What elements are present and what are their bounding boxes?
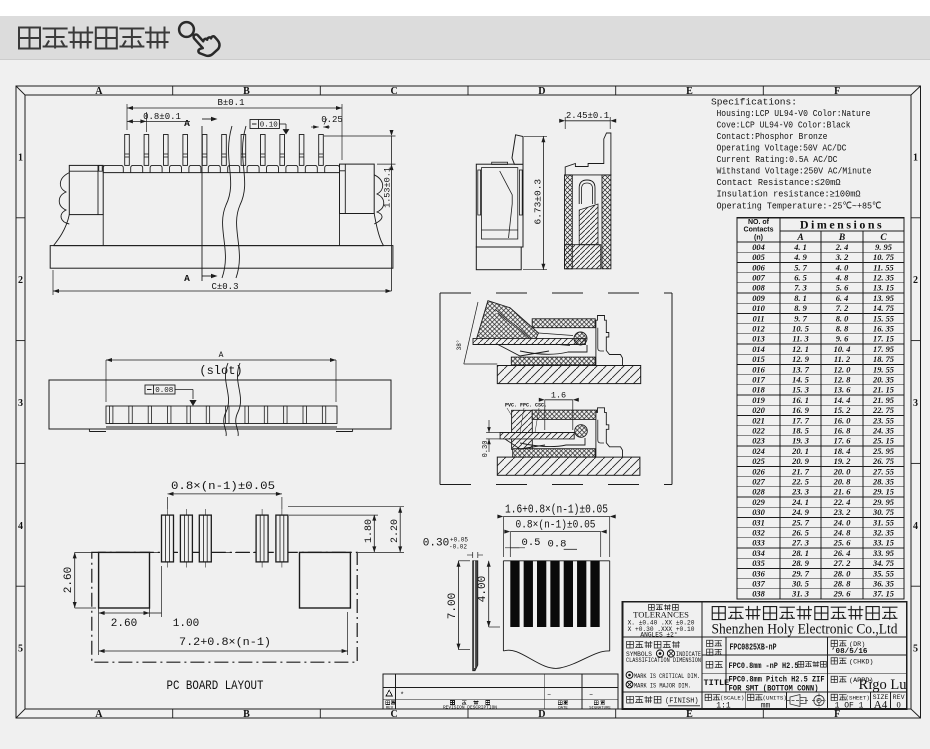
svg-text:C: C — [391, 709, 398, 720]
svg-text:007: 007 — [752, 274, 765, 283]
svg-text:MARK IS MAJOR DIM.: MARK IS MAJOR DIM. — [634, 683, 691, 690]
svg-text:36. 35: 36. 35 — [872, 580, 894, 589]
svg-text:004: 004 — [752, 243, 765, 252]
svg-text:029: 029 — [752, 498, 765, 507]
svg-text:21. 6: 21. 6 — [833, 488, 852, 497]
svg-text:013: 013 — [752, 335, 765, 344]
svg-text:18. 4: 18. 4 — [834, 447, 851, 456]
svg-text:024: 024 — [752, 447, 765, 456]
svg-text:TOLERANCES: TOLERANCES — [633, 610, 689, 620]
svg-text:005: 005 — [752, 253, 765, 262]
svg-text:PVC.: PVC. — [505, 403, 517, 409]
svg-text:021: 021 — [752, 416, 765, 425]
svg-text:3. 2: 3. 2 — [835, 253, 849, 262]
svg-text:9. 95: 9. 95 — [875, 243, 892, 252]
svg-text:–: – — [547, 691, 551, 699]
svg-text:1: 1 — [913, 152, 918, 163]
svg-text:24. 1: 24. 1 — [791, 498, 809, 507]
svg-text:17. 15: 17. 15 — [873, 335, 894, 344]
svg-text:29. 7: 29. 7 — [791, 569, 810, 578]
svg-text:16. 9: 16. 9 — [792, 406, 810, 415]
svg-text:4. 1: 4. 1 — [793, 243, 807, 252]
svg-text:0.10: 0.10 — [260, 122, 279, 130]
svg-text:035: 035 — [752, 559, 765, 568]
svg-text:0.8×(n-1)±0.05: 0.8×(n-1)±0.05 — [516, 520, 596, 532]
svg-text:23. 3: 23. 3 — [791, 488, 809, 497]
svg-text:31. 55: 31. 55 — [872, 518, 894, 527]
svg-text:26. 5: 26. 5 — [791, 529, 809, 538]
svg-text:4. 8: 4. 8 — [835, 274, 849, 283]
svg-text:13. 15: 13. 15 — [873, 284, 894, 293]
svg-text:10. 75: 10. 75 — [873, 253, 894, 262]
svg-text:1.6+0.8×(n-1)±0.05: 1.6+0.8×(n-1)±0.05 — [505, 504, 608, 517]
svg-text:19. 2: 19. 2 — [834, 457, 851, 466]
svg-text:4. 0: 4. 0 — [835, 263, 849, 272]
svg-text:14. 5: 14. 5 — [792, 376, 809, 385]
svg-text:–: – — [589, 691, 593, 699]
svg-text:15. 2: 15. 2 — [834, 406, 851, 415]
svg-text:0.08: 0.08 — [155, 387, 173, 395]
svg-text:28. 8: 28. 8 — [833, 580, 852, 589]
svg-text:A4: A4 — [874, 699, 888, 711]
svg-text:010: 010 — [752, 304, 765, 313]
svg-text:1.53±0.1: 1.53±0.1 — [383, 167, 393, 208]
svg-text:24. 35: 24. 35 — [872, 427, 894, 436]
svg-text:4: 4 — [913, 521, 918, 532]
svg-text:D: D — [538, 709, 545, 720]
svg-text:ANGLES ±2°: ANGLES ±2° — [640, 631, 677, 638]
svg-text:FOR SMT (BOTTOM CONN): FOR SMT (BOTTOM CONN) — [729, 683, 819, 693]
svg-text:5: 5 — [913, 644, 918, 655]
svg-text:2.45±0.1: 2.45±0.1 — [566, 111, 609, 121]
svg-text:1.00: 1.00 — [173, 618, 199, 630]
svg-text:18. 5: 18. 5 — [792, 427, 809, 436]
svg-text:27. 2: 27. 2 — [833, 559, 851, 568]
svg-text:REVISION DESCRIPTION: REVISION DESCRIPTION — [443, 705, 497, 711]
svg-text:1: 1 — [18, 152, 23, 163]
svg-text:12. 1: 12. 1 — [792, 345, 809, 354]
svg-text:A: A — [796, 233, 803, 243]
svg-text:2.20: 2.20 — [390, 519, 401, 543]
svg-text:Specifications:: Specifications: — [711, 96, 797, 107]
svg-text:*: * — [400, 692, 404, 700]
svg-text:A: A — [184, 273, 190, 284]
svg-text:Dimensions: Dimensions — [800, 217, 884, 231]
svg-text:C: C — [880, 233, 887, 243]
svg-text:25. 7: 25. 7 — [791, 518, 810, 527]
svg-text:19. 3: 19. 3 — [792, 437, 809, 446]
svg-text:037: 037 — [752, 580, 765, 589]
svg-text:B±0.1: B±0.1 — [217, 98, 244, 108]
svg-text:20. 9: 20. 9 — [791, 457, 810, 466]
svg-text:C±0.3: C±0.3 — [211, 282, 238, 292]
svg-text:12. 8: 12. 8 — [834, 376, 852, 385]
svg-text:E: E — [686, 86, 693, 97]
svg-text:Contacts: Contacts — [744, 227, 774, 234]
svg-text:15. 55: 15. 55 — [873, 314, 894, 323]
svg-text:4: 4 — [18, 521, 23, 532]
svg-text:17. 95: 17. 95 — [873, 345, 894, 354]
svg-text:1.80: 1.80 — [364, 519, 375, 543]
svg-text:Contact Resistance:≤20mΩ: Contact Resistance:≤20mΩ — [717, 177, 841, 188]
svg-text:7. 3: 7. 3 — [794, 284, 807, 293]
svg-text:1.6: 1.6 — [551, 391, 566, 401]
svg-text:Insulation resistance:≥100mΩ: Insulation resistance:≥100mΩ — [717, 189, 861, 200]
svg-text:014: 014 — [752, 345, 765, 354]
svg-text:17. 6: 17. 6 — [834, 437, 852, 446]
svg-text:12. 9: 12. 9 — [792, 355, 810, 364]
svg-text:8. 8: 8. 8 — [836, 325, 849, 334]
svg-text:NO. of: NO. of — [748, 219, 770, 226]
svg-text:(CHKD): (CHKD) — [849, 659, 873, 667]
svg-text:036: 036 — [752, 569, 765, 578]
svg-text:19. 55: 19. 55 — [873, 365, 894, 374]
svg-text:15. 3: 15. 3 — [792, 386, 809, 395]
svg-text:017: 017 — [752, 376, 765, 385]
svg-text:027: 027 — [752, 478, 765, 487]
svg-text:026: 026 — [752, 467, 765, 476]
svg-text:9. 6: 9. 6 — [836, 335, 849, 344]
svg-text:23. 55: 23. 55 — [872, 416, 894, 425]
svg-text:015: 015 — [752, 355, 765, 364]
svg-text:0.8×(n-1)±0.05: 0.8×(n-1)±0.05 — [171, 481, 275, 493]
svg-text:0.5: 0.5 — [522, 537, 541, 549]
svg-text:023: 023 — [752, 437, 765, 446]
svg-text:16. 8: 16. 8 — [834, 427, 852, 436]
svg-text:21. 95: 21. 95 — [872, 396, 894, 405]
svg-text:38°: 38° — [456, 340, 463, 351]
svg-text:0.30: 0.30 — [423, 538, 449, 550]
svg-text:10. 5: 10. 5 — [792, 325, 809, 334]
svg-text:16. 35: 16. 35 — [873, 325, 894, 334]
svg-text:028: 028 — [752, 488, 765, 497]
svg-text:28. 0: 28. 0 — [833, 569, 852, 578]
svg-text:21. 7: 21. 7 — [791, 467, 810, 476]
svg-text:FPC0825XB-nP: FPC0825XB-nP — [730, 643, 777, 653]
svg-text:12. 0: 12. 0 — [834, 365, 852, 374]
svg-text:’08/5/16: ’08/5/16 — [831, 648, 868, 656]
svg-text:6. 5: 6. 5 — [794, 274, 807, 283]
svg-text:29. 15: 29. 15 — [872, 488, 894, 497]
svg-text:26. 4: 26. 4 — [833, 549, 851, 558]
svg-text:+0.05: +0.05 — [450, 537, 468, 544]
svg-text:23. 2: 23. 2 — [833, 508, 851, 517]
svg-text:0.8±0.1: 0.8±0.1 — [143, 112, 181, 122]
svg-text:CSC.: CSC. — [535, 403, 547, 409]
svg-text:A: A — [95, 86, 103, 97]
svg-text:006: 006 — [752, 263, 765, 272]
svg-text:008: 008 — [752, 284, 765, 293]
svg-text:REV: REV — [386, 707, 394, 711]
svg-text:22. 4: 22. 4 — [833, 498, 851, 507]
svg-text:034: 034 — [752, 549, 765, 558]
svg-text:011: 011 — [752, 314, 764, 323]
svg-text:6.73±0.3: 6.73±0.3 — [532, 179, 543, 225]
svg-text:020: 020 — [752, 406, 765, 415]
svg-text:D: D — [538, 86, 545, 97]
svg-text:13. 95: 13. 95 — [873, 294, 894, 303]
svg-text:038: 038 — [752, 590, 765, 599]
svg-text:SIGNATURE: SIGNATURE — [589, 707, 611, 711]
svg-text:12. 35: 12. 35 — [873, 274, 894, 283]
svg-text:(n): (n) — [754, 235, 763, 242]
svg-text:13. 7: 13. 7 — [792, 365, 810, 374]
svg-text:0.30: 0.30 — [482, 441, 490, 458]
svg-text:012: 012 — [752, 325, 765, 334]
svg-text:27. 3: 27. 3 — [791, 539, 809, 548]
svg-text:1:1: 1:1 — [716, 701, 731, 710]
svg-text:13. 6: 13. 6 — [834, 386, 852, 395]
svg-text:16. 1: 16. 1 — [792, 396, 809, 405]
svg-text:2: 2 — [913, 275, 918, 286]
svg-text:TITLE: TITLE — [704, 678, 730, 688]
svg-text:4. 9: 4. 9 — [793, 253, 807, 262]
svg-text:019: 019 — [752, 396, 765, 405]
svg-text:2.60: 2.60 — [63, 567, 75, 593]
svg-text:A: A — [95, 709, 103, 720]
svg-text:20. 1: 20. 1 — [791, 447, 809, 456]
svg-text:FPC.: FPC. — [520, 403, 532, 409]
svg-text:17. 7: 17. 7 — [792, 416, 810, 425]
svg-text:5: 5 — [18, 644, 23, 655]
svg-text:022: 022 — [752, 427, 765, 436]
svg-text:3: 3 — [18, 398, 23, 409]
svg-text:6. 4: 6. 4 — [836, 294, 849, 303]
svg-text:FPC0.8mm Pitch H2.5 ZIF: FPC0.8mm Pitch H2.5 ZIF — [729, 674, 825, 684]
svg-text:PC BOARD LAYOUT: PC BOARD LAYOUT — [167, 679, 264, 693]
svg-text:28. 9: 28. 9 — [791, 559, 810, 568]
svg-text:FPC0.8mm -nP H2.5: FPC0.8mm -nP H2.5 — [729, 661, 799, 671]
svg-text:28. 1: 28. 1 — [791, 549, 809, 558]
svg-text:22. 5: 22. 5 — [791, 478, 809, 487]
svg-text:E: E — [686, 709, 693, 720]
svg-text:14. 75: 14. 75 — [873, 304, 894, 313]
svg-text:Housing:LCP UL94-V0 Color:Natu: Housing:LCP UL94-V0 Color:Nature — [717, 108, 871, 119]
svg-text:A: A — [219, 351, 224, 360]
svg-text:11. 3: 11. 3 — [792, 335, 808, 344]
svg-text:Current Rating:0.5A AC/DC: Current Rating:0.5A AC/DC — [717, 154, 838, 165]
svg-text:31. 3: 31. 3 — [791, 590, 809, 599]
svg-text:3: 3 — [913, 398, 918, 409]
svg-text:CLASSIFICATION DIMENSION: CLASSIFICATION DIMENSION — [626, 657, 701, 664]
svg-text:Operating Temperature:-25℃~+85: Operating Temperature:-25℃~+85℃ — [717, 200, 882, 211]
svg-text:35. 55: 35. 55 — [872, 569, 894, 578]
svg-text:20. 8: 20. 8 — [833, 478, 852, 487]
svg-text:DATE: DATE — [558, 707, 568, 711]
svg-text:33. 95: 33. 95 — [872, 549, 894, 558]
svg-text:24. 9: 24. 9 — [791, 508, 810, 517]
svg-text:37. 15: 37. 15 — [872, 590, 894, 599]
svg-text:30. 5: 30. 5 — [791, 580, 809, 589]
svg-text:20. 35: 20. 35 — [872, 376, 894, 385]
svg-text:Contact:Phosphor Bronze: Contact:Phosphor Bronze — [717, 131, 828, 142]
svg-text:5. 6: 5. 6 — [836, 284, 849, 293]
svg-text:MARK IS CRITICAL DIM.: MARK IS CRITICAL DIM. — [634, 673, 700, 680]
svg-text:031: 031 — [752, 518, 765, 527]
svg-text:2.60: 2.60 — [111, 618, 137, 630]
svg-text:4.00: 4.00 — [477, 576, 489, 602]
svg-text:33. 15: 33. 15 — [872, 539, 894, 548]
svg-text:25. 15: 25. 15 — [872, 437, 894, 446]
svg-text:B: B — [243, 709, 250, 720]
svg-text:2. 4: 2. 4 — [835, 243, 849, 252]
svg-text:Withstand Voltage:250V AC/Minu: Withstand Voltage:250V AC/Minute — [717, 166, 872, 177]
svg-text:033: 033 — [752, 539, 765, 548]
svg-text:Rigo Lu: Rigo Lu — [859, 677, 907, 693]
svg-text:34. 75: 34. 75 — [872, 559, 894, 568]
svg-text:7.00: 7.00 — [447, 593, 459, 619]
svg-text:5. 7: 5. 7 — [794, 263, 807, 272]
svg-text:7. 2: 7. 2 — [836, 304, 849, 313]
svg-text:7.2+0.8×(n-1): 7.2+0.8×(n-1) — [179, 637, 271, 649]
svg-text:-0.02: -0.02 — [449, 544, 467, 551]
svg-text:21. 15: 21. 15 — [872, 386, 894, 395]
svg-text:F: F — [834, 86, 840, 97]
svg-text:C: C — [391, 86, 398, 97]
svg-text:20. 0: 20. 0 — [833, 467, 852, 476]
svg-text:Cove:LCP UL94-V0 Color:Black: Cove:LCP UL94-V0 Color:Black — [717, 119, 851, 130]
svg-text:Shenzhen Holy Electronic Co.,L: Shenzhen Holy Electronic Co.,Ltd — [712, 622, 899, 638]
svg-text:8. 1: 8. 1 — [794, 294, 807, 303]
svg-text:009: 009 — [752, 294, 765, 303]
svg-text:030: 030 — [752, 508, 765, 517]
svg-text:25. 6: 25. 6 — [833, 539, 852, 548]
svg-text:26. 75: 26. 75 — [872, 457, 894, 466]
svg-text:mm: mm — [761, 701, 771, 710]
svg-text:032: 032 — [752, 529, 765, 538]
svg-text:18. 75: 18. 75 — [873, 355, 894, 364]
svg-text:016: 016 — [752, 365, 765, 374]
svg-text:(slot): (slot) — [199, 364, 242, 378]
svg-text:A: A — [184, 118, 190, 129]
svg-text:32. 35: 32. 35 — [872, 529, 894, 538]
svg-text:B: B — [243, 86, 250, 97]
svg-text:24. 8: 24. 8 — [833, 529, 852, 538]
svg-text:2: 2 — [18, 275, 23, 286]
svg-text:B: B — [838, 233, 845, 243]
svg-text:0: 0 — [896, 700, 900, 710]
svg-text:11. 2: 11. 2 — [834, 355, 850, 364]
svg-text:0.8: 0.8 — [548, 539, 567, 551]
svg-text:9. 7: 9. 7 — [794, 314, 807, 323]
svg-text:14. 4: 14. 4 — [834, 396, 851, 405]
svg-text:27. 55: 27. 55 — [872, 467, 894, 476]
svg-text:29. 6: 29. 6 — [833, 590, 852, 599]
svg-text:018: 018 — [752, 386, 765, 395]
svg-text:25. 95: 25. 95 — [872, 447, 894, 456]
svg-text:30. 75: 30. 75 — [872, 508, 894, 517]
svg-text:10. 4: 10. 4 — [834, 345, 851, 354]
svg-text:8. 9: 8. 9 — [794, 304, 807, 313]
svg-text:(FINISH): (FINISH) — [665, 698, 699, 706]
svg-text:22. 75: 22. 75 — [872, 406, 894, 415]
svg-text:11. 55: 11. 55 — [873, 263, 893, 272]
svg-text:29. 95: 29. 95 — [872, 498, 894, 507]
svg-text:8. 0: 8. 0 — [836, 314, 849, 323]
svg-text:F: F — [834, 709, 840, 720]
svg-text:1 OF 1: 1 OF 1 — [835, 701, 864, 710]
svg-text:24. 0: 24. 0 — [833, 518, 852, 527]
svg-text:Operating Voltage:50V AC/DC: Operating Voltage:50V AC/DC — [717, 143, 847, 154]
svg-text:28. 35: 28. 35 — [872, 478, 894, 487]
svg-text:16. 0: 16. 0 — [834, 416, 852, 425]
svg-text:025: 025 — [752, 457, 765, 466]
